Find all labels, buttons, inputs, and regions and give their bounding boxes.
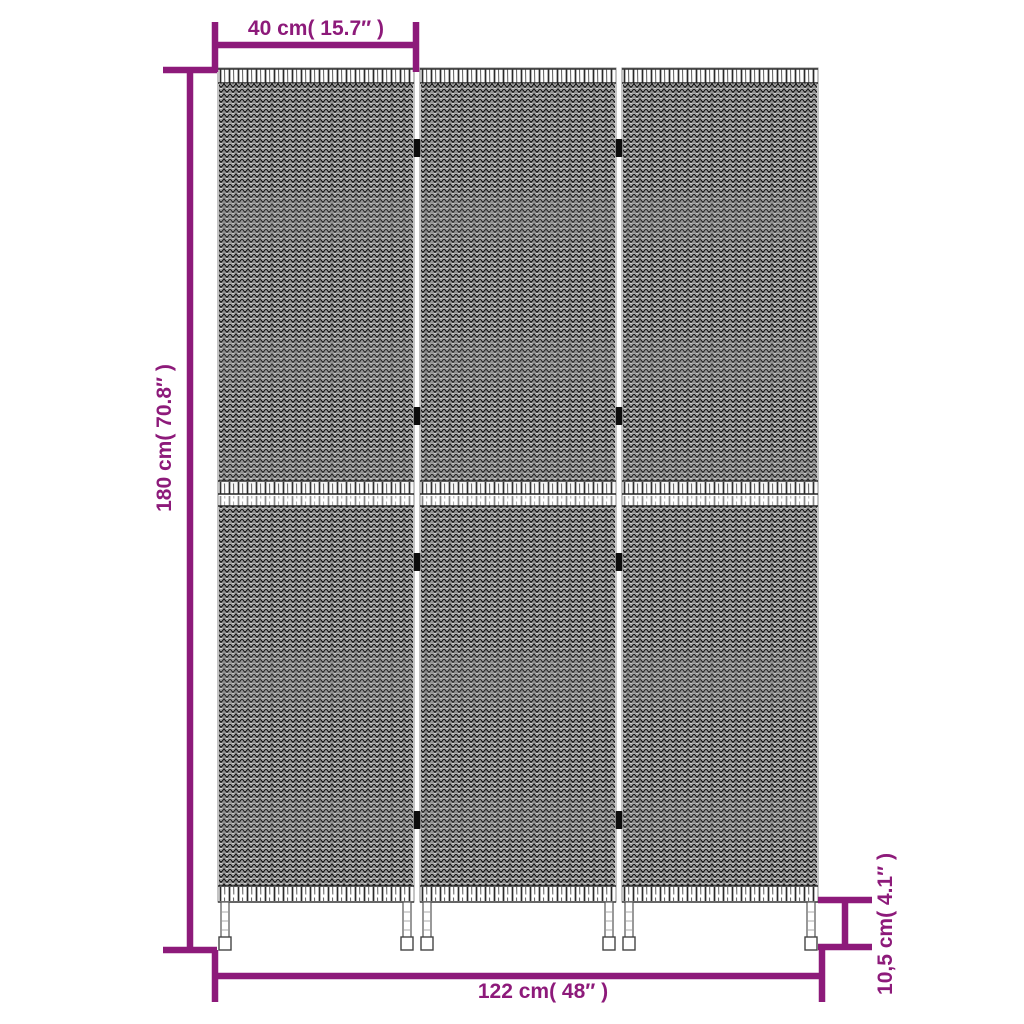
- hinge-icon: [616, 139, 623, 157]
- dimension-line-foot-height: [818, 900, 872, 947]
- divider-panel-center: [420, 68, 616, 950]
- dimension-label-foot-height: 10,5 cm( 4.1″ ): [873, 839, 899, 1009]
- dimension-label-panel-width: 40 cm( 15.7″ ): [215, 16, 417, 42]
- hinge-icon: [616, 553, 623, 571]
- divider-panel-left: [218, 68, 414, 950]
- hinge-icon: [414, 139, 421, 157]
- hinge-icon: [414, 553, 421, 571]
- hinge-icon: [414, 811, 421, 829]
- product-dimension-diagram: 40 cm( 15.7″ ) 180 cm( 70.8″ ) 122 cm( 4…: [0, 0, 1024, 1024]
- hinge-icon: [616, 811, 623, 829]
- hinge-icon: [616, 407, 623, 425]
- divider-panel-right: [622, 68, 818, 950]
- hinge-icon: [414, 407, 421, 425]
- dimension-label-total-height: 180 cm( 70.8″ ): [152, 288, 178, 588]
- dimension-label-total-width: 122 cm( 48″ ): [240, 979, 846, 1005]
